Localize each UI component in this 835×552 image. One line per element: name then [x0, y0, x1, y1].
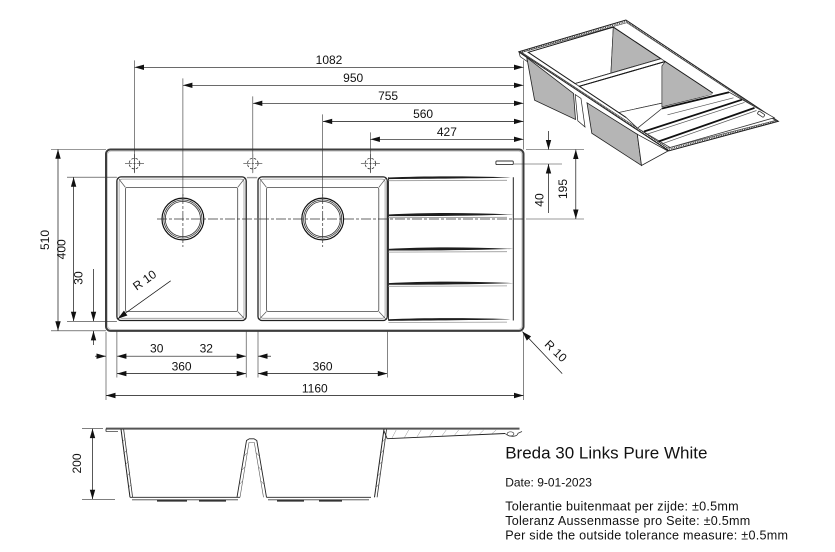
- svg-text:400: 400: [55, 239, 69, 259]
- svg-text:Toleranz Aussenmasse pro Seite: Toleranz Aussenmasse pro Seite: ±0.5mm: [505, 514, 750, 528]
- svg-text:30: 30: [150, 342, 164, 356]
- svg-text:40: 40: [533, 193, 547, 207]
- svg-text:Tolerantie buitenmaat per zijd: Tolerantie buitenmaat per zijde: ±0.5mm: [505, 500, 739, 514]
- svg-text:30: 30: [72, 271, 86, 285]
- svg-text:560: 560: [413, 107, 433, 121]
- svg-text:360: 360: [172, 360, 192, 374]
- svg-text:950: 950: [343, 71, 363, 85]
- svg-text:510: 510: [38, 230, 52, 250]
- svg-text:1160: 1160: [302, 382, 328, 396]
- svg-text:Breda 30 Links Pure White: Breda 30 Links Pure White: [505, 444, 707, 463]
- svg-text:32: 32: [200, 342, 214, 356]
- svg-text:427: 427: [437, 125, 457, 139]
- svg-text:1082: 1082: [316, 53, 343, 67]
- svg-text:755: 755: [378, 89, 398, 103]
- svg-text:200: 200: [70, 453, 84, 473]
- svg-text:195: 195: [556, 179, 570, 199]
- svg-text:360: 360: [313, 360, 333, 374]
- svg-text:Date: 9-01-2023: Date: 9-01-2023: [505, 475, 592, 489]
- svg-text:Per side the outside tolerance: Per side the outside tolerance measure: …: [505, 529, 788, 543]
